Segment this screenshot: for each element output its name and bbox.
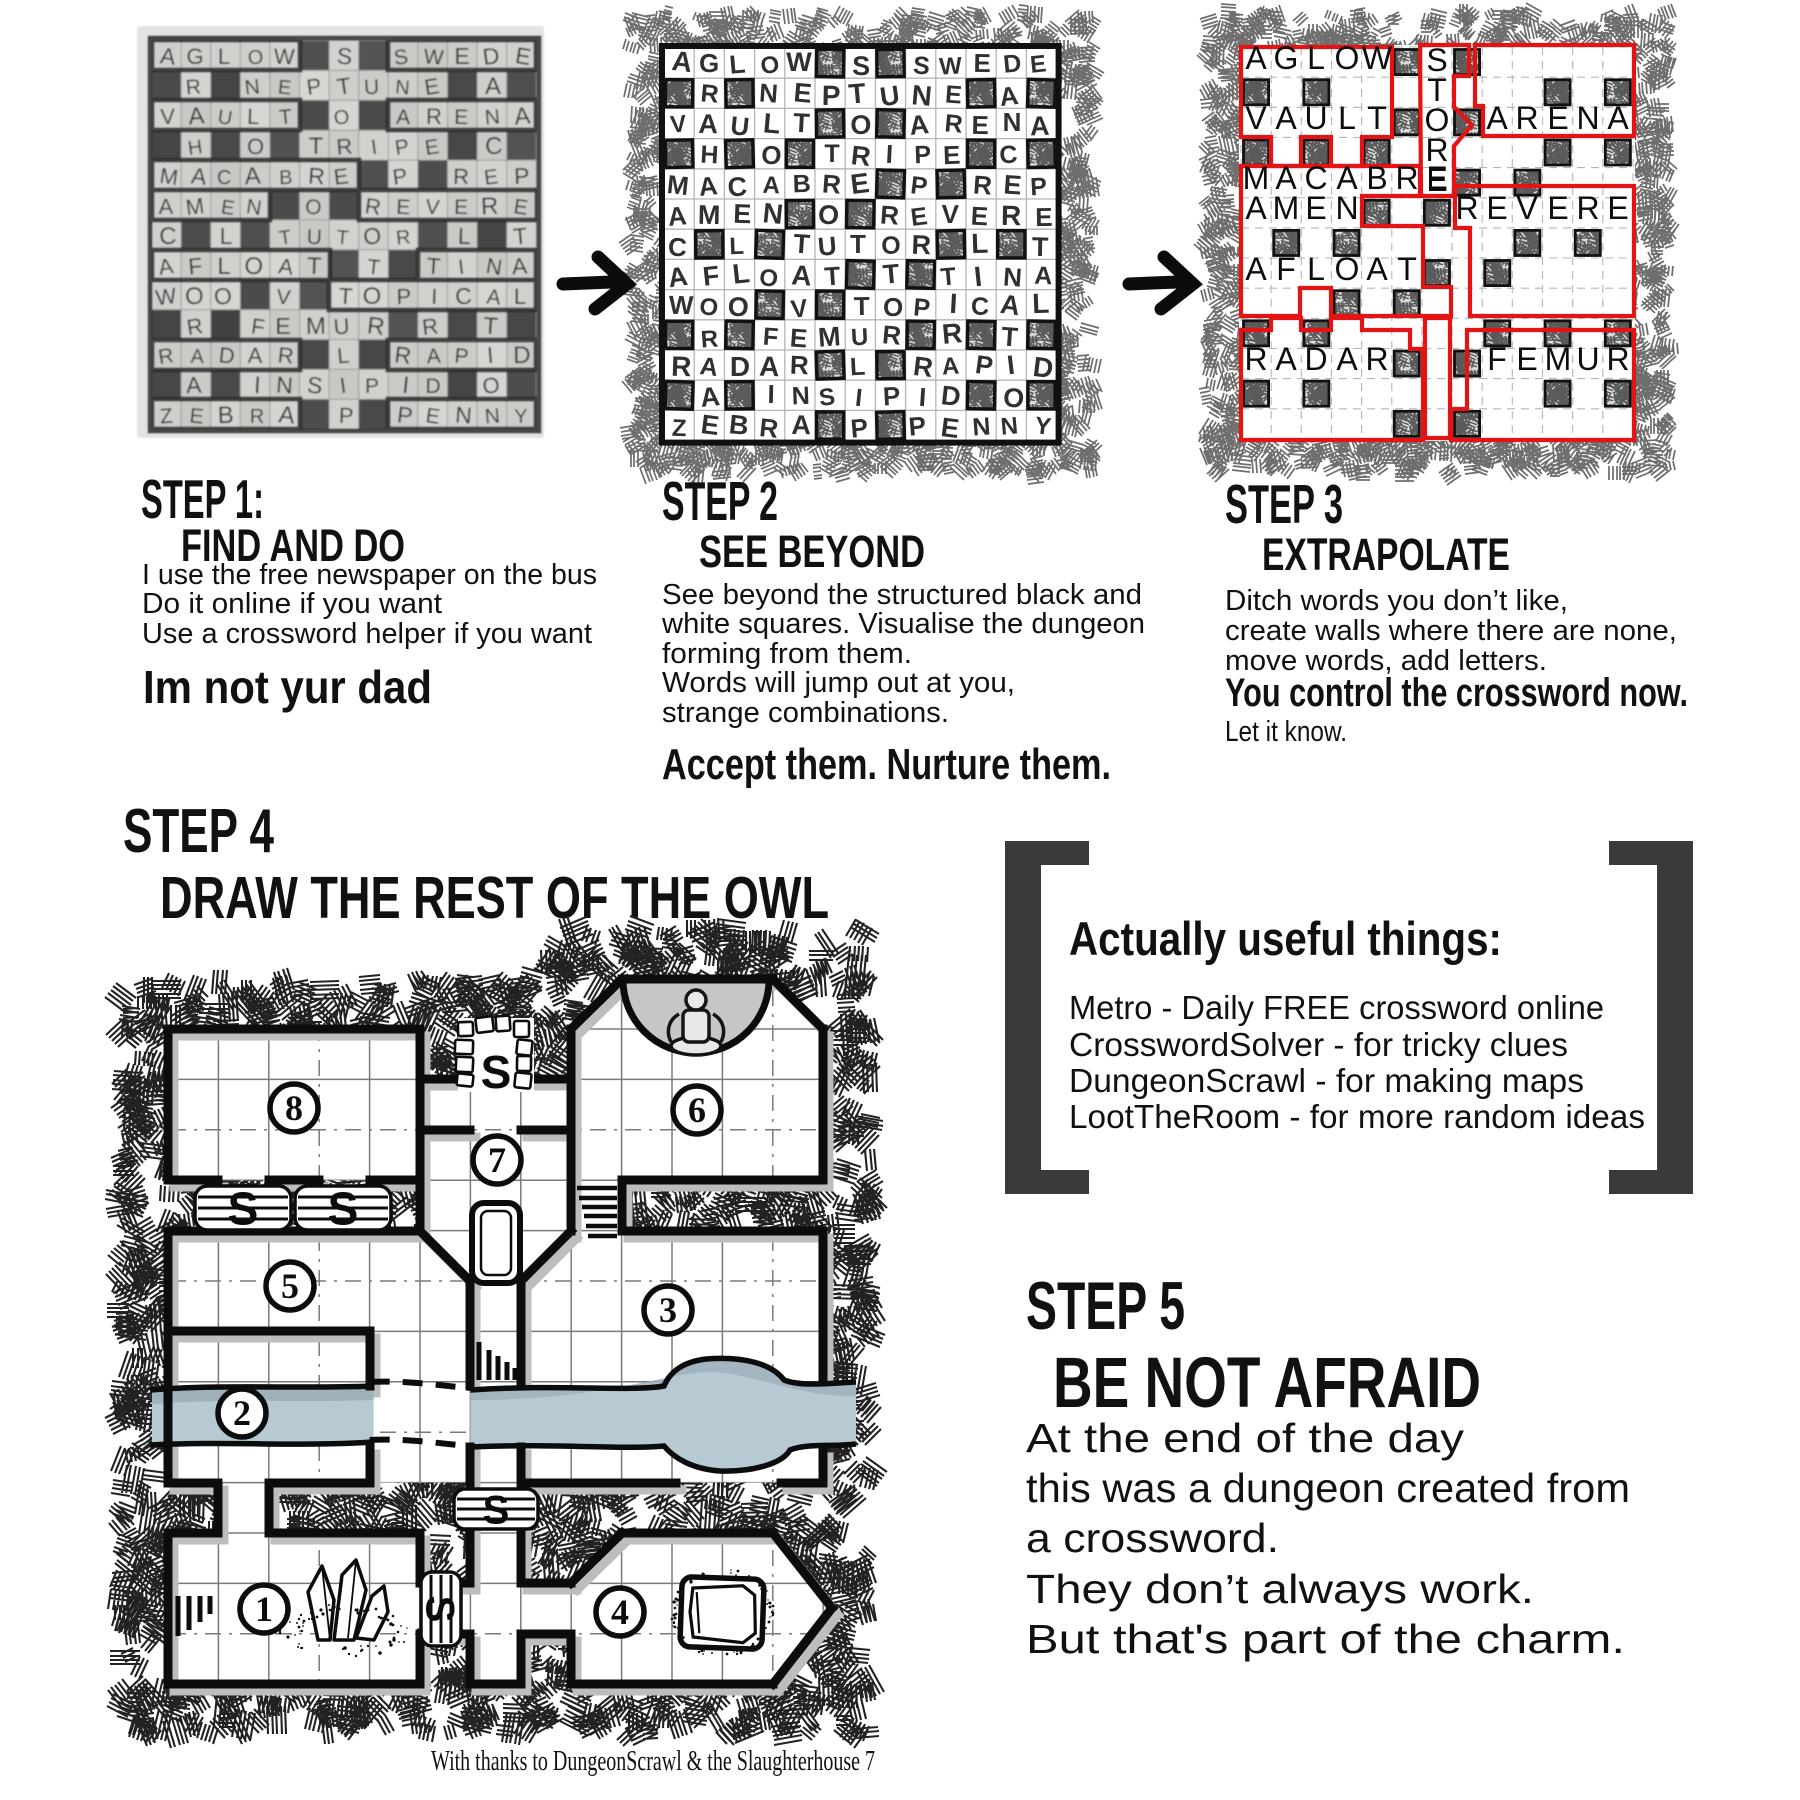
svg-text:R: R — [277, 342, 295, 369]
svg-text:Actually useful things:: Actually useful things: — [1069, 912, 1502, 965]
svg-text:O: O — [1002, 382, 1026, 414]
svg-text:A: A — [1336, 341, 1358, 377]
svg-text:R: R — [250, 406, 264, 428]
svg-text:P: P — [914, 141, 932, 170]
svg-text:A: A — [513, 102, 531, 130]
svg-text:A: A — [511, 252, 529, 279]
svg-text:T: T — [850, 229, 866, 259]
svg-text:P: P — [822, 80, 841, 111]
svg-text:L: L — [1032, 288, 1050, 320]
svg-text:Z: Z — [671, 415, 687, 442]
svg-text:F: F — [701, 260, 721, 292]
svg-text:N: N — [791, 382, 810, 411]
svg-text:A: A — [1275, 100, 1297, 136]
svg-text:this was a dungeon created fro: this was a dungeon created from — [1026, 1465, 1630, 1511]
svg-text:B: B — [217, 402, 234, 430]
svg-text:O: O — [881, 232, 900, 260]
svg-text:S: S — [418, 1596, 462, 1623]
svg-text:T: T — [309, 133, 324, 160]
svg-text:R: R — [912, 351, 935, 383]
svg-text:U: U — [729, 110, 751, 142]
svg-text:1: 1 — [255, 1589, 273, 1629]
svg-text:G: G — [699, 48, 720, 78]
svg-text:E: E — [396, 196, 411, 220]
svg-text:T: T — [278, 105, 293, 129]
svg-text:S: S — [481, 1046, 512, 1098]
svg-text:D: D — [1031, 351, 1055, 384]
svg-text:A: A — [1607, 100, 1629, 136]
svg-text:O: O — [850, 110, 872, 140]
svg-text:L: L — [218, 44, 230, 69]
svg-text:L: L — [729, 233, 745, 260]
svg-text:W: W — [669, 290, 695, 320]
svg-text:T: T — [366, 255, 381, 279]
svg-text:A: A — [790, 259, 812, 291]
svg-text:R: R — [393, 341, 413, 369]
svg-text:T: T — [847, 77, 867, 109]
svg-text:A: A — [1245, 190, 1267, 226]
svg-text:P: P — [1030, 173, 1048, 202]
svg-text:N: N — [245, 195, 263, 220]
svg-text:O: O — [761, 140, 783, 171]
svg-text:C: C — [998, 140, 1018, 169]
svg-text:Y: Y — [514, 406, 528, 428]
svg-text:A: A — [188, 102, 206, 130]
svg-text:I use the free newspaper on th: I use the free newspaper on the bus — [142, 559, 597, 591]
svg-text:E: E — [1486, 190, 1507, 226]
svg-text:O: O — [184, 282, 205, 310]
svg-text:A: A — [670, 45, 694, 78]
svg-text:R: R — [1576, 190, 1599, 226]
svg-text:O: O — [333, 106, 350, 129]
svg-text:D: D — [481, 42, 501, 70]
svg-text:B: B — [1366, 160, 1387, 196]
svg-text:E: E — [483, 165, 500, 190]
svg-text:G: G — [1274, 40, 1299, 76]
svg-text:U: U — [817, 230, 838, 262]
svg-text:O: O — [698, 293, 719, 322]
svg-text:N: N — [243, 75, 261, 100]
svg-text:H: H — [700, 141, 720, 170]
svg-text:A: A — [1275, 341, 1297, 377]
svg-text:T: T — [854, 291, 871, 321]
svg-text:E: E — [973, 48, 991, 78]
svg-text:V: V — [941, 199, 960, 229]
svg-text:P: P — [365, 375, 379, 398]
svg-text:STEP 5: STEP 5 — [1026, 1268, 1185, 1344]
svg-text:B: B — [792, 170, 811, 199]
svg-text:E: E — [971, 110, 989, 140]
svg-text:A: A — [1245, 251, 1267, 287]
svg-text:A: A — [396, 106, 411, 129]
svg-text:N: N — [1003, 107, 1022, 137]
svg-text:W: W — [786, 47, 812, 77]
svg-text:R: R — [1515, 100, 1538, 136]
svg-text:C: C — [485, 133, 503, 161]
svg-text:7: 7 — [488, 1140, 506, 1180]
svg-text:I: I — [253, 372, 261, 399]
svg-text:T: T — [824, 140, 839, 168]
svg-text:E: E — [942, 140, 960, 171]
svg-text:C: C — [454, 282, 472, 309]
svg-text:Ditch words you don’t like,: Ditch words you don’t like, — [1225, 585, 1568, 617]
svg-text:R: R — [335, 133, 353, 159]
svg-text:D: D — [1002, 49, 1022, 78]
svg-text:E: E — [944, 80, 963, 109]
svg-text:E: E — [454, 106, 469, 129]
svg-text:N: N — [910, 79, 933, 112]
svg-text:N: N — [484, 404, 501, 428]
svg-text:E: E — [733, 199, 752, 230]
svg-text:E: E — [939, 412, 961, 444]
svg-text:DungeonScrawl - for making map: DungeonScrawl - for making maps — [1069, 1062, 1584, 1099]
svg-text:S: S — [483, 1488, 510, 1532]
svg-text:V: V — [1245, 100, 1267, 136]
svg-text:a crossword.: a crossword. — [1026, 1515, 1279, 1561]
svg-text:Accept them. Nurture them.: Accept them. Nurture them. — [662, 740, 1111, 789]
svg-text:I: I — [431, 284, 438, 309]
svg-text:Z: Z — [159, 404, 174, 428]
svg-text:E: E — [1547, 100, 1568, 136]
svg-text:R: R — [395, 226, 412, 249]
svg-text:V: V — [669, 110, 687, 138]
svg-text:E: E — [1305, 190, 1326, 226]
svg-text:L: L — [247, 104, 260, 129]
svg-text:O: O — [727, 292, 749, 323]
svg-text:N: N — [484, 105, 501, 129]
svg-text:E: E — [275, 313, 290, 339]
svg-text:E: E — [1607, 190, 1628, 226]
svg-text:Y: Y — [1033, 412, 1052, 441]
svg-text:L: L — [217, 253, 230, 280]
svg-text:T: T — [1367, 100, 1387, 136]
svg-text:E: E — [1003, 169, 1023, 200]
svg-text:E: E — [1029, 50, 1048, 79]
svg-text:create walls where there are n: create walls where there are none, — [1225, 615, 1677, 647]
svg-text:O: O — [1335, 40, 1360, 76]
svg-text:W: W — [423, 45, 445, 70]
svg-text:See beyond the structured blac: See beyond the structured black and — [662, 579, 1142, 611]
svg-text:R: R — [671, 351, 692, 383]
svg-text:C: C — [159, 223, 177, 250]
svg-text:STEP 4: STEP 4 — [123, 797, 274, 866]
svg-text:E: E — [332, 163, 350, 190]
svg-text:They don’t always work.: They don’t always work. — [1026, 1566, 1534, 1612]
svg-text:A: A — [791, 410, 811, 440]
svg-text:L: L — [971, 228, 989, 260]
svg-text:T: T — [1000, 321, 1019, 352]
svg-text:U: U — [363, 76, 379, 100]
svg-text:But that's part of the charm.: But that's part of the charm. — [1026, 1616, 1625, 1662]
svg-text:V: V — [276, 285, 292, 309]
svg-text:N: N — [1335, 190, 1358, 226]
svg-text:S: S — [817, 383, 836, 412]
svg-text:T: T — [1032, 232, 1050, 262]
svg-text:8: 8 — [285, 1088, 303, 1128]
svg-text:At the end of the day: At the end of the day — [1026, 1415, 1465, 1461]
svg-text:R: R — [789, 350, 809, 381]
svg-text:N: N — [275, 371, 293, 398]
svg-text:F: F — [1487, 341, 1507, 377]
svg-text:R: R — [821, 168, 842, 199]
svg-text:N: N — [1002, 261, 1023, 292]
svg-text:E: E — [454, 196, 468, 219]
svg-text:A: A — [941, 352, 960, 380]
svg-text:V: V — [425, 195, 441, 219]
svg-text:O: O — [362, 222, 383, 250]
svg-text:M: M — [1545, 341, 1572, 377]
svg-text:LootTheRoom - for more random: LootTheRoom - for more random ideas — [1069, 1098, 1645, 1135]
svg-text:D: D — [1304, 341, 1327, 377]
svg-text:Words will jump out at you,: Words will jump out at you, — [662, 667, 1015, 699]
svg-text:2: 2 — [233, 1393, 251, 1433]
svg-text:R: R — [941, 317, 964, 350]
svg-text:R: R — [1365, 341, 1388, 377]
svg-text:A: A — [244, 163, 261, 191]
svg-text:O: O — [1335, 251, 1360, 287]
svg-text:V: V — [160, 104, 176, 130]
svg-text:I: I — [767, 379, 775, 409]
svg-text:R: R — [307, 162, 325, 189]
svg-text:N: N — [454, 401, 472, 428]
svg-text:A: A — [485, 285, 502, 310]
svg-text:A: A — [698, 109, 718, 139]
svg-text:L: L — [220, 223, 233, 249]
svg-text:D: D — [513, 342, 531, 369]
svg-text:H: H — [186, 136, 203, 160]
svg-text:P: P — [907, 410, 927, 441]
svg-text:A: A — [1029, 111, 1050, 142]
svg-text:T: T — [882, 258, 902, 289]
svg-text:U: U — [333, 313, 351, 339]
svg-text:S: S — [328, 1183, 359, 1235]
svg-text:U: U — [1576, 341, 1599, 377]
svg-text:B: B — [728, 409, 751, 441]
svg-text:C: C — [971, 293, 989, 321]
svg-text:M: M — [1273, 190, 1300, 226]
svg-text:T: T — [1397, 251, 1417, 287]
svg-text:T: T — [335, 227, 349, 250]
svg-text:L: L — [762, 107, 782, 139]
svg-text:D: D — [730, 351, 750, 382]
svg-text:E: E — [699, 409, 721, 441]
svg-text:D: D — [218, 342, 236, 369]
svg-text:W: W — [273, 44, 295, 70]
svg-text:L: L — [849, 353, 866, 382]
svg-text:F: F — [1276, 251, 1296, 287]
svg-text:A: A — [762, 172, 780, 200]
svg-text:U: U — [306, 226, 322, 250]
svg-text:R: R — [185, 75, 202, 99]
svg-text:A: A — [698, 352, 719, 382]
svg-text:R: R — [1001, 200, 1022, 231]
svg-text:Metro - Daily FREE crossword o: Metro - Daily FREE crossword online — [1069, 989, 1604, 1026]
svg-text:P: P — [912, 293, 931, 322]
svg-text:A: A — [666, 261, 689, 293]
svg-text:L: L — [731, 257, 751, 290]
svg-text:SEE BEYOND: SEE BEYOND — [699, 526, 925, 577]
svg-text:L: L — [514, 284, 526, 309]
svg-text:R: R — [879, 199, 900, 230]
svg-text:O: O — [817, 199, 840, 230]
svg-text:T: T — [792, 228, 811, 259]
svg-text:E: E — [793, 77, 814, 108]
svg-text:T: T — [823, 260, 841, 291]
svg-text:R: R — [911, 230, 932, 261]
svg-text:R: R — [758, 412, 780, 444]
svg-text:T: T — [482, 313, 499, 341]
svg-text:C: C — [667, 232, 688, 263]
svg-text:S: S — [336, 43, 353, 70]
svg-text:BE NOT AFRAID: BE NOT AFRAID — [1053, 1344, 1481, 1423]
svg-text:V: V — [789, 294, 809, 324]
svg-text:E: E — [1035, 202, 1053, 232]
svg-text:A: A — [1245, 40, 1267, 76]
svg-text:F: F — [762, 323, 779, 352]
svg-text:A: A — [248, 343, 263, 368]
svg-text:A: A — [485, 73, 501, 100]
svg-text:V: V — [1516, 190, 1538, 226]
svg-text:A: A — [697, 170, 719, 202]
svg-text:R: R — [1455, 190, 1478, 226]
svg-text:R: R — [421, 313, 440, 340]
svg-text:P: P — [396, 284, 411, 309]
svg-text:W: W — [939, 52, 963, 80]
svg-text:strange combinations.: strange combinations. — [662, 697, 949, 729]
svg-text:R: R — [700, 325, 719, 353]
svg-text:E: E — [849, 167, 871, 200]
svg-text:P: P — [882, 381, 901, 412]
svg-text:U: U — [878, 80, 901, 112]
svg-text:R: R — [480, 193, 499, 221]
svg-text:R: R — [972, 169, 993, 200]
svg-text:white squares. Visualise the d: white squares. Visualise the dungeon — [661, 608, 1145, 640]
svg-text:R: R — [426, 104, 442, 129]
svg-text:E: E — [277, 76, 293, 99]
svg-text:O: O — [758, 264, 779, 293]
svg-text:S: S — [852, 51, 871, 81]
svg-text:O: O — [212, 282, 233, 310]
svg-text:U: U — [850, 324, 869, 352]
svg-text:O: O — [305, 196, 323, 220]
svg-text:R: R — [1395, 160, 1418, 196]
svg-text:G: G — [186, 44, 203, 69]
svg-text:Do it online if you want: Do it online if you want — [142, 588, 442, 620]
svg-text:M: M — [698, 200, 721, 230]
svg-text:M: M — [666, 169, 691, 201]
svg-text:S: S — [912, 51, 931, 80]
svg-text:O: O — [363, 283, 382, 310]
svg-text:T: T — [338, 283, 354, 310]
svg-text:T: T — [306, 253, 322, 281]
svg-text:N: N — [971, 412, 991, 441]
svg-text:M: M — [158, 163, 180, 190]
svg-text:A: A — [1366, 251, 1388, 287]
svg-text:W: W — [1362, 40, 1393, 76]
svg-text:S: S — [306, 371, 324, 398]
svg-text:E: E — [1516, 341, 1537, 377]
svg-text:N: N — [761, 197, 784, 230]
svg-text:L: L — [728, 48, 747, 79]
svg-text:R: R — [943, 109, 963, 138]
svg-text:L: L — [457, 223, 471, 249]
svg-text:P: P — [396, 401, 414, 429]
svg-text:5: 5 — [281, 1266, 299, 1306]
svg-text:L: L — [336, 343, 350, 369]
svg-text:L: L — [1307, 251, 1325, 287]
svg-text:A: A — [158, 194, 173, 219]
svg-text:P: P — [849, 412, 869, 443]
svg-text:CrosswordSolver - for tricky c: CrosswordSolver - for tricky clues — [1069, 1026, 1568, 1063]
svg-text:M: M — [306, 313, 326, 340]
svg-text:U: U — [1304, 100, 1327, 136]
svg-text:S: S — [228, 1183, 259, 1235]
svg-text:A: A — [186, 372, 203, 399]
svg-text:O: O — [247, 46, 264, 69]
svg-text:T: T — [512, 222, 528, 249]
svg-text:A: A — [1034, 262, 1053, 291]
svg-text:M: M — [817, 321, 842, 352]
svg-text:R: R — [881, 319, 903, 351]
svg-text:STEP 2: STEP 2 — [662, 470, 778, 532]
svg-text:3: 3 — [659, 1290, 677, 1330]
svg-text:O: O — [883, 292, 904, 322]
svg-text:R: R — [1244, 341, 1267, 377]
svg-text:E: E — [1426, 162, 1447, 198]
svg-text:C: C — [217, 167, 232, 189]
svg-text:O: O — [243, 252, 264, 281]
svg-text:N: N — [394, 76, 410, 99]
svg-text:M: M — [184, 193, 206, 220]
svg-text:N: N — [1000, 412, 1020, 440]
svg-text:T: T — [426, 253, 442, 280]
svg-text:N: N — [758, 77, 779, 108]
svg-text:O: O — [481, 372, 501, 399]
svg-text:A: A — [908, 109, 931, 141]
svg-text:R: R — [366, 312, 387, 341]
svg-text:R: R — [453, 164, 469, 189]
svg-text:A: A — [277, 401, 296, 430]
svg-text:6: 6 — [688, 1090, 706, 1130]
svg-text:O: O — [246, 133, 265, 159]
svg-text:B: B — [279, 167, 293, 189]
svg-text:P: P — [514, 163, 530, 190]
svg-text:Let it know.: Let it know. — [1225, 716, 1347, 748]
svg-text:N: N — [1576, 100, 1599, 136]
svg-text:A: A — [426, 345, 441, 369]
svg-text:F: F — [187, 252, 203, 279]
svg-text:P: P — [454, 344, 470, 368]
svg-text:Use a crossword helper if you: Use a crossword helper if you want — [142, 618, 592, 650]
svg-text:E: E — [454, 43, 469, 69]
svg-text:P: P — [338, 403, 354, 428]
svg-text:A: A — [999, 289, 1022, 321]
svg-text:T: T — [792, 108, 811, 139]
svg-text:W: W — [154, 283, 178, 311]
svg-text:D: D — [940, 380, 963, 412]
svg-text:I: I — [949, 288, 958, 319]
svg-text:STEP 3: STEP 3 — [1225, 473, 1343, 535]
svg-text:With thanks to DungeonScrawl &: With thanks to DungeonScrawl & the Slaug… — [431, 1745, 875, 1777]
svg-text:A: A — [759, 351, 780, 383]
svg-text:D: D — [425, 375, 441, 398]
svg-text:A: A — [190, 346, 205, 368]
svg-text:A: A — [667, 200, 689, 232]
svg-text:L: L — [1338, 100, 1356, 136]
svg-text:EXTRAPOLATE: EXTRAPOLATE — [1262, 529, 1510, 580]
svg-text:E: E — [909, 202, 929, 232]
svg-text:L: L — [1307, 40, 1325, 76]
